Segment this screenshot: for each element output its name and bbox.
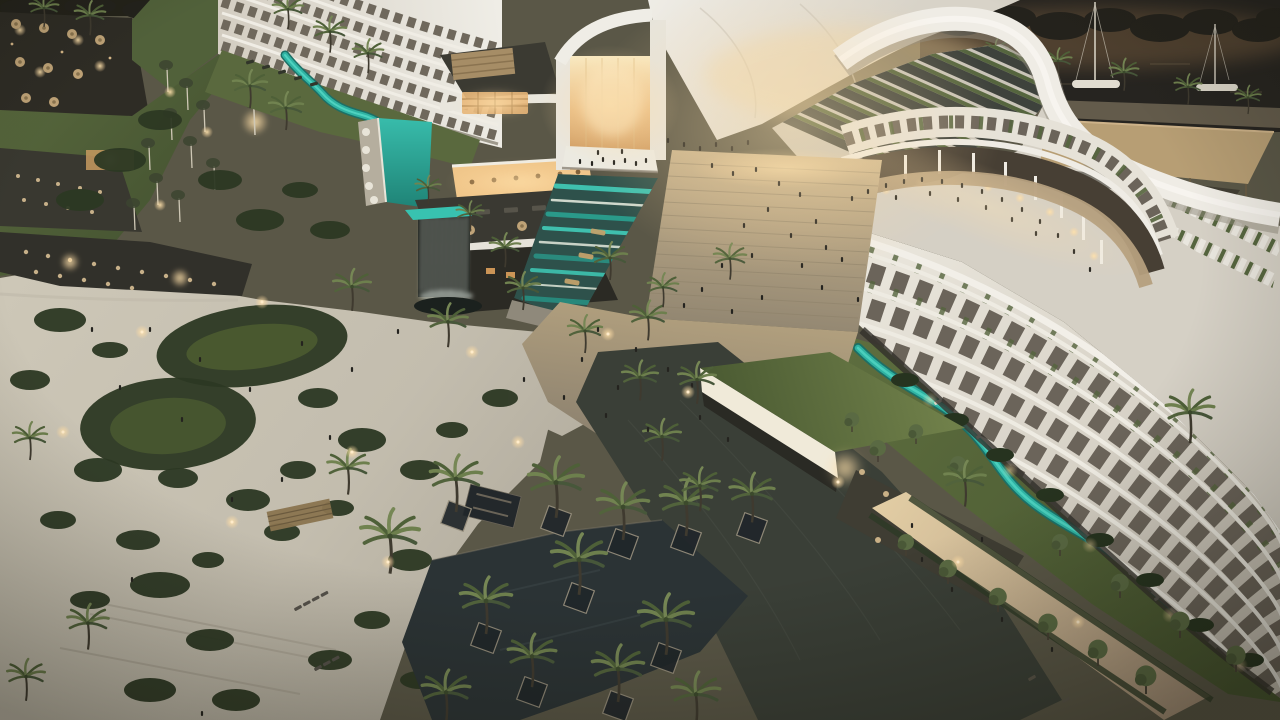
vignette <box>0 0 1280 720</box>
scene-canvas <box>0 0 1280 720</box>
resort-aerial-rendering <box>0 0 1280 720</box>
